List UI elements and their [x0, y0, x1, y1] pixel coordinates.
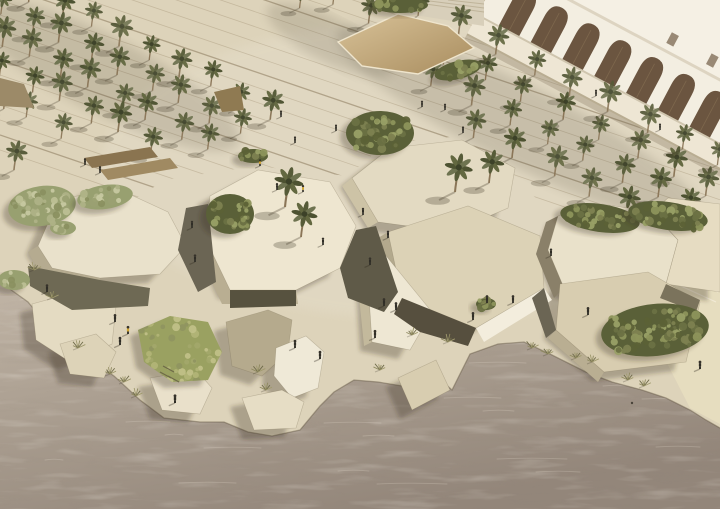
person-head	[276, 183, 278, 185]
hedge-speckle	[367, 128, 375, 136]
plate-west-big-facet	[230, 290, 296, 308]
person-head	[99, 166, 101, 168]
hedge-speckle	[57, 226, 64, 233]
hedge-speckle	[50, 220, 56, 226]
person-head	[119, 337, 122, 340]
person-head	[486, 295, 489, 298]
person-head	[322, 238, 324, 240]
grass-speckle	[193, 359, 196, 362]
hedge-speckle	[360, 136, 369, 145]
hedge-speckle	[260, 149, 268, 157]
hedge-speckle	[239, 152, 243, 156]
person-head	[550, 248, 552, 250]
grass-speckle	[176, 363, 182, 369]
grass-speckle	[148, 357, 151, 360]
grass-speckle	[174, 369, 178, 373]
hedge-speckle	[243, 202, 248, 207]
grass-speckle	[156, 334, 159, 337]
grass-speckle	[160, 325, 165, 330]
hedge-speckle	[390, 120, 395, 125]
hedge-speckle	[375, 119, 379, 123]
grass-speckle	[184, 323, 188, 327]
person-head	[127, 326, 130, 329]
hedge-speckle	[477, 298, 481, 302]
grass-speckle	[172, 323, 180, 331]
hedge-speckle	[408, 7, 414, 13]
grass-speckle	[194, 342, 200, 348]
hedge-speckle	[351, 118, 360, 127]
grass-speckle	[168, 335, 175, 342]
grass-speckle	[184, 360, 189, 365]
person-head	[699, 361, 702, 364]
hedge-speckle	[365, 123, 370, 128]
person-head	[302, 185, 304, 187]
person-head	[191, 221, 193, 223]
person-head	[335, 124, 337, 126]
hedge-speckle	[2, 279, 7, 284]
grass-speckle	[204, 348, 208, 352]
water-speck	[631, 402, 633, 404]
person-head	[114, 314, 117, 317]
person-head	[46, 284, 49, 287]
hedge-speckle	[227, 218, 235, 226]
person-head	[472, 312, 475, 315]
hedge-speckle	[64, 224, 70, 230]
person-head	[369, 257, 372, 260]
person-head	[174, 394, 177, 397]
hedge-speckle	[17, 283, 23, 289]
person-head	[512, 295, 515, 298]
hedge-speckle	[354, 130, 363, 139]
grass-speckle	[149, 336, 153, 340]
hedge-speckle	[397, 128, 403, 134]
hedge-speckle	[492, 302, 496, 306]
person-head	[421, 101, 423, 103]
person-head	[259, 159, 261, 161]
grass-speckle	[178, 368, 186, 376]
hedge-speckle	[377, 137, 386, 146]
grass-speckle	[188, 344, 192, 348]
hedge-speckle	[394, 143, 398, 147]
grass-speckle	[211, 358, 216, 363]
hedge-speckle	[388, 134, 395, 141]
hedge-speckle	[418, 3, 423, 8]
person-head	[194, 254, 197, 257]
hedge-speckle	[244, 208, 248, 212]
hedge-speckle	[9, 271, 13, 275]
person-head	[294, 136, 296, 138]
grass-speckle	[195, 368, 199, 372]
person-head	[595, 90, 597, 92]
rendering-canvas	[0, 0, 720, 509]
person-head	[383, 298, 386, 301]
person-head	[294, 340, 297, 343]
hedge-speckle	[380, 118, 387, 125]
person-head	[374, 330, 377, 333]
grass-speckle	[146, 351, 152, 357]
grass-speckle	[145, 332, 148, 335]
person-head	[280, 111, 282, 113]
grass-speckle	[189, 325, 197, 333]
person-head	[319, 351, 322, 354]
hedge-speckle	[3, 283, 7, 287]
hedge-speckle	[403, 122, 411, 130]
hedge-speckle	[392, 5, 398, 11]
grass-speckle	[193, 372, 199, 378]
person-head	[395, 302, 398, 305]
hedge-speckle	[255, 149, 260, 154]
architectural-rendering	[0, 0, 720, 509]
hedge-speckle	[418, 8, 422, 12]
hedge-speckle	[370, 116, 374, 120]
person-head	[444, 104, 446, 106]
hedge-speckle	[240, 202, 244, 206]
grass-speckle	[152, 344, 157, 349]
hedge-speckle	[210, 201, 218, 209]
grass-speckle	[187, 369, 193, 375]
hedge-speckle	[353, 145, 359, 151]
hedge-speckle	[239, 156, 244, 161]
hedge-speckle	[237, 208, 241, 212]
hedge-speckle	[9, 281, 16, 288]
hedge-speckle	[211, 219, 219, 227]
grass-speckle	[185, 353, 191, 359]
person-head	[587, 307, 590, 310]
person-head	[462, 126, 464, 128]
person-head	[362, 208, 364, 210]
person-head	[659, 123, 661, 125]
person-head	[84, 158, 86, 160]
hedge-speckle	[241, 217, 246, 222]
person-head	[387, 231, 389, 233]
